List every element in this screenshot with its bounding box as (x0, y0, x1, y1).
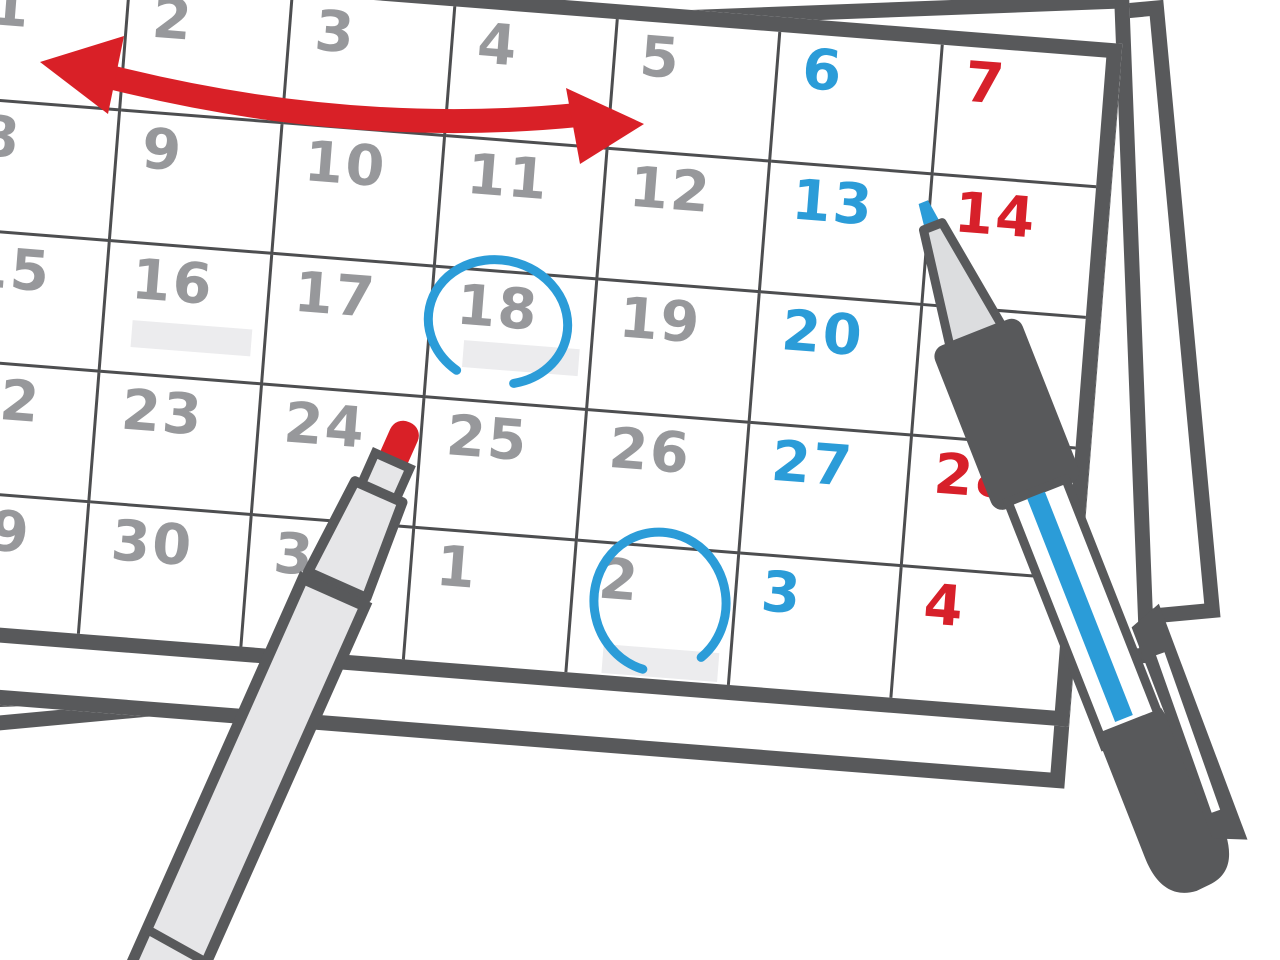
calendar-illustration-scene: 1234567891011121314151617181920212223242… (0, 0, 1280, 960)
annotations-overlay (0, 0, 1280, 960)
red-pen-front-barrel (308, 479, 408, 598)
arrow-left-head (40, 36, 124, 114)
blue-circle-date-2 (585, 523, 735, 680)
blue-pen-cone (907, 216, 1002, 346)
arrow-right-head (566, 88, 644, 164)
red-double-arrow (40, 36, 644, 164)
red-pen-body (67, 578, 365, 960)
arrow-shaft (98, 74, 578, 121)
red-pen (67, 409, 441, 960)
blue-circle-date-18 (417, 247, 580, 397)
blue-pen (880, 176, 1262, 909)
